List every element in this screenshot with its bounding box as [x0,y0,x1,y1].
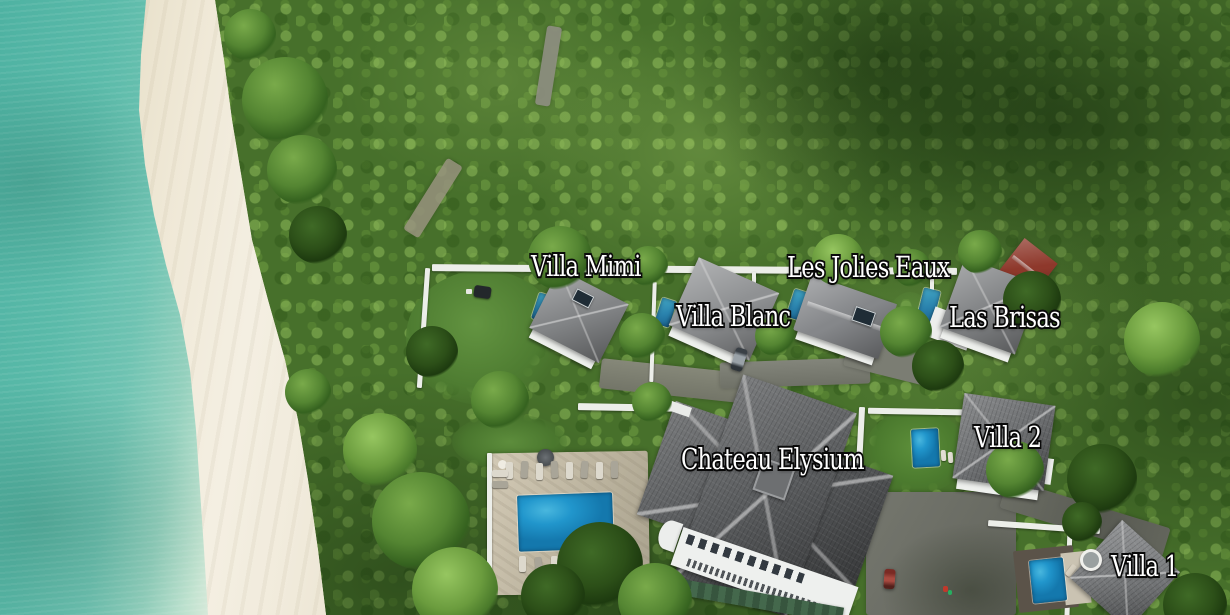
sun-lounger [536,463,543,480]
sun-lounger [519,556,526,572]
label-villa-mimi: Villa Mimi [531,249,641,283]
garden-object-green [948,590,952,595]
sun-lounger [611,461,618,478]
sun-lounger [551,461,559,478]
tree-canopy-blob [285,369,331,415]
villa-1-pool [1029,557,1067,603]
label-las-brisas: Las Brisas [949,300,1060,334]
villa-1-spiral-stair [1080,549,1102,571]
tree-canopy-blob [242,57,328,143]
sun-lounger [941,450,947,461]
tree-canopy-blob [619,313,665,359]
tree-canopy-blob [224,9,276,61]
tree-canopy-blob [406,326,458,378]
label-les-jolies-eaux: Les Jolies Eaux [787,250,949,284]
sun-lounger [492,481,508,488]
tree-canopy-blob [289,206,347,264]
tree-canopy-blob [958,230,1002,274]
sun-lounger [492,470,508,477]
tree-canopy-blob [267,135,337,205]
label-villa-blanc: Villa Blanc [676,299,790,333]
sun-lounger [521,461,529,478]
label-villa-2: Villa 2 [974,420,1041,454]
sun-lounger [948,452,954,463]
chateau-parking-court [866,492,1016,615]
villa-2-pool [911,428,940,467]
tree-canopy-blob [1124,302,1200,378]
label-villa-1: Villa 1 [1111,549,1178,583]
sun-lounger [580,461,588,478]
garden-chair [466,289,472,294]
parked-car-red [883,569,895,590]
garden-bench [473,285,492,299]
sun-lounger [596,462,603,479]
tree-canopy-blob [1062,502,1102,542]
aerial-beach-resort-photo: Villa Mimi Les Jolies Eaux Villa Blanc L… [0,0,1230,615]
sun-lounger [566,462,573,479]
tree-canopy-blob [912,340,964,392]
label-chateau-elysium: Chateau Elysium [681,442,864,476]
tree-canopy-blob [471,371,529,429]
tree-canopy-blob [632,382,672,422]
